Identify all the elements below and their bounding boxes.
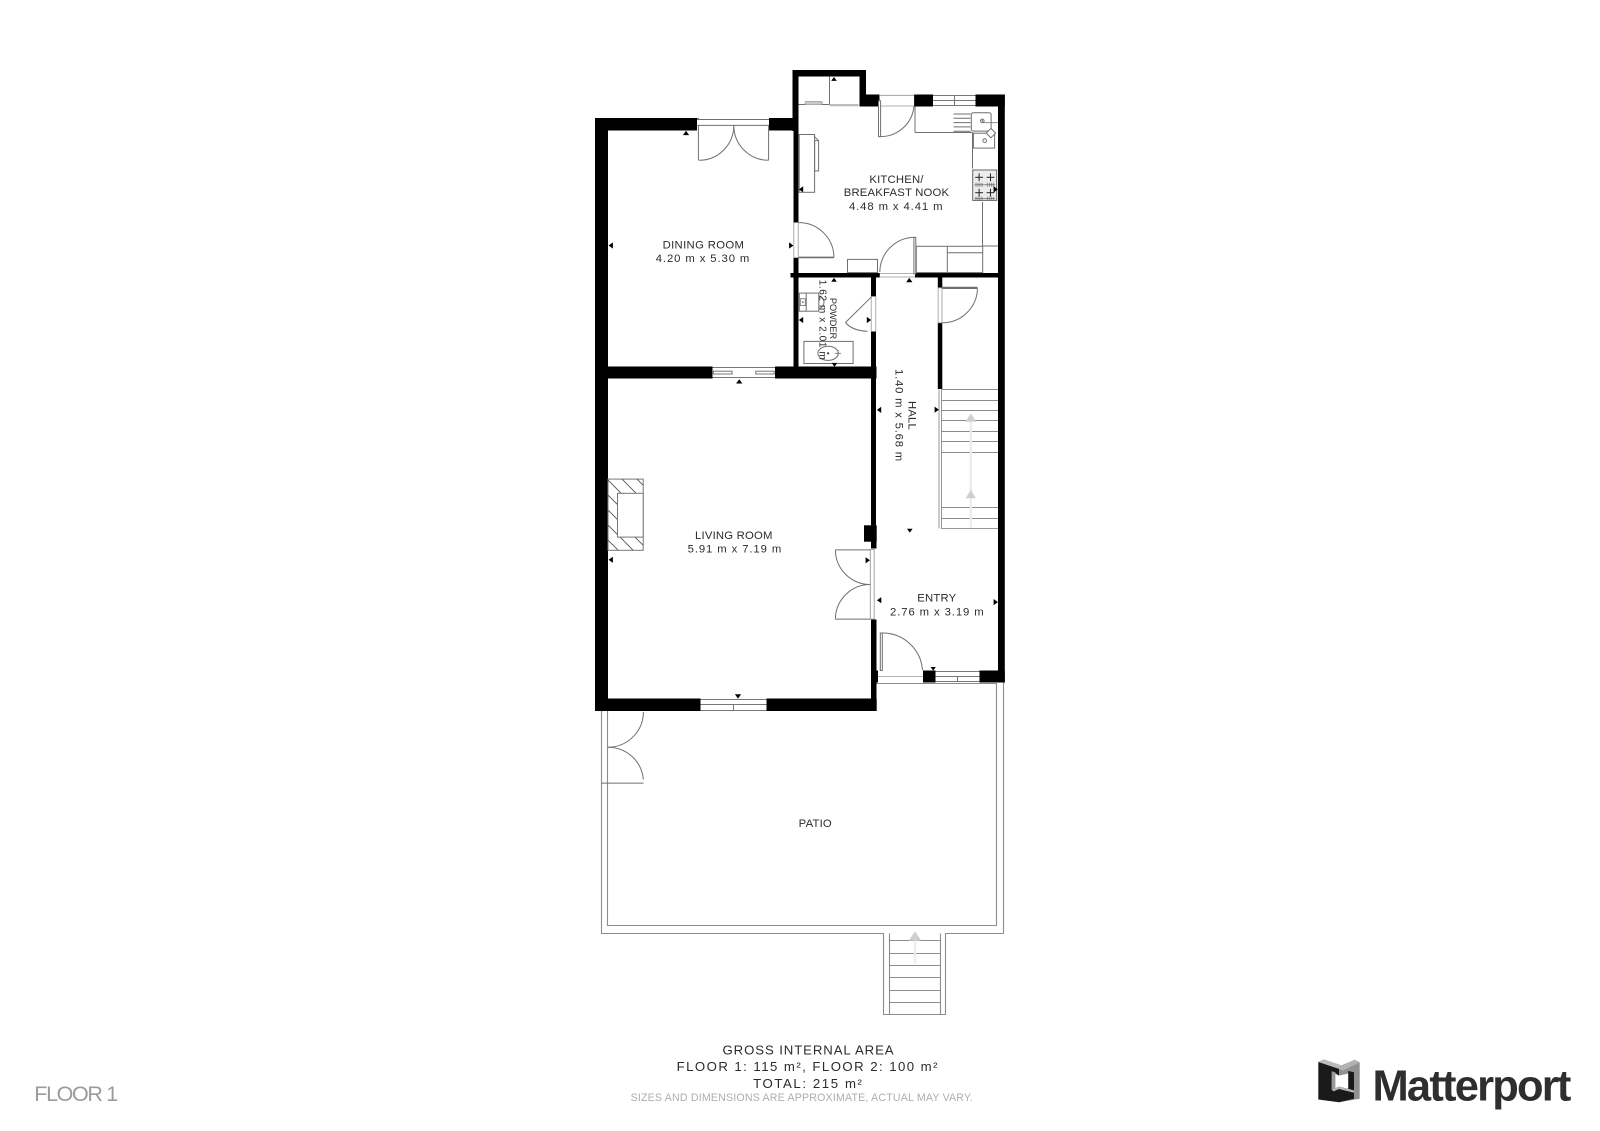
svg-text:FLOOR 1: 115 m², FLOOR 2: 100: FLOOR 1: 115 m², FLOOR 2: 100 m² [677, 1059, 939, 1074]
svg-text:LIVING ROOM: LIVING ROOM [695, 530, 773, 542]
svg-text:1.40 m x 5.68 m: 1.40 m x 5.68 m [893, 369, 905, 462]
svg-text:KITCHEN/: KITCHEN/ [869, 174, 924, 186]
svg-text:DINING ROOM: DINING ROOM [663, 240, 745, 252]
svg-text:4.48 m x 4.41 m: 4.48 m x 4.41 m [849, 201, 944, 213]
svg-text:5.91 m x 7.19 m: 5.91 m x 7.19 m [688, 543, 783, 555]
svg-text:PATIO: PATIO [799, 818, 832, 830]
svg-text:GROSS INTERNAL AREA: GROSS INTERNAL AREA [723, 1043, 895, 1058]
svg-text:FLOOR 1: FLOOR 1 [34, 1082, 117, 1106]
svg-text:SIZES AND DIMENSIONS ARE APPRO: SIZES AND DIMENSIONS ARE APPROXIMATE, AC… [631, 1092, 973, 1104]
svg-text:TOTAL: 215 m²: TOTAL: 215 m² [753, 1076, 863, 1091]
svg-text:HALL: HALL [905, 401, 917, 430]
svg-text:1.62 m x 2.01 m: 1.62 m x 2.01 m [816, 280, 827, 361]
svg-text:Matterport: Matterport [1373, 1062, 1571, 1110]
svg-text:4.20 m x 5.30 m: 4.20 m x 5.30 m [656, 253, 751, 265]
svg-text:ENTRY: ENTRY [917, 592, 956, 604]
svg-text:BREAKFAST NOOK: BREAKFAST NOOK [844, 187, 950, 199]
svg-text:2.76 m x 3.19 m: 2.76 m x 3.19 m [890, 606, 985, 618]
svg-text:POWDER: POWDER [828, 298, 838, 340]
